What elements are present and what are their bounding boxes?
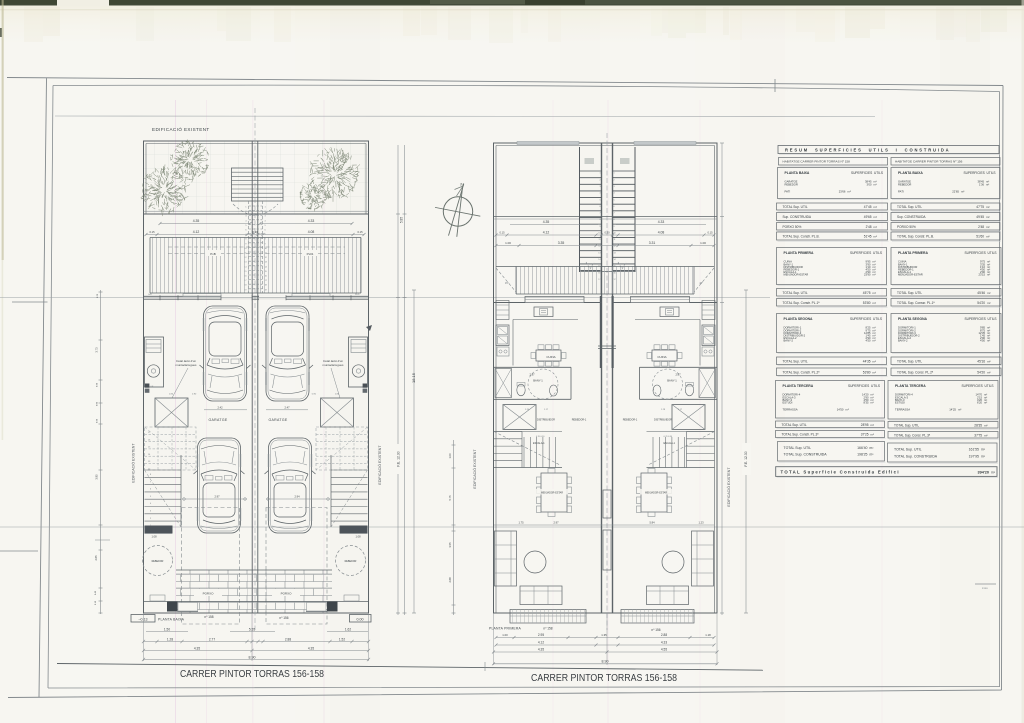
svg-text:REBEDOR: REBEDOR — [152, 560, 164, 563]
svg-text:53'80: 53'80 — [863, 301, 871, 305]
svg-text:F.E. 12.30: F.E. 12.30 — [744, 451, 748, 466]
svg-text:PLANTA TERCERA: PLANTA TERCERA — [783, 384, 814, 388]
svg-text:4.35: 4.35 — [308, 646, 314, 650]
svg-text:N: N — [460, 182, 463, 187]
svg-text:m²: m² — [986, 183, 989, 186]
svg-text:3.35: 3.35 — [558, 241, 565, 245]
svg-text:GPl: GPl — [148, 294, 152, 296]
svg-text:PLANTA SEGONA: PLANTA SEGONA — [784, 317, 814, 321]
svg-text:198'25: 198'25 — [857, 453, 867, 457]
svg-text:1.50: 1.50 — [164, 627, 170, 631]
svg-text:2.87: 2.87 — [675, 373, 681, 377]
svg-text:53'80: 53'80 — [863, 370, 871, 374]
svg-text:m²: m² — [961, 189, 964, 193]
svg-text:22'65: 22'65 — [952, 189, 959, 193]
svg-text:m²: m² — [874, 225, 878, 229]
svg-text:nº 158: nº 158 — [204, 615, 213, 619]
svg-text:1.08: 1.08 — [151, 535, 157, 539]
svg-text:45'46: 45'46 — [977, 291, 985, 295]
svg-text:m²: m² — [874, 183, 877, 186]
svg-text:2.65: 2.65 — [94, 555, 98, 561]
svg-text:23'66: 23'66 — [839, 189, 846, 193]
svg-text:12: 12 — [598, 246, 600, 248]
svg-text:166'40: 166'40 — [857, 446, 867, 450]
svg-text:0.15: 0.15 — [499, 231, 505, 235]
svg-text:m²: m² — [873, 370, 877, 374]
svg-text:51'45: 51'45 — [864, 235, 872, 239]
svg-text:394'20: 394'20 — [978, 471, 989, 475]
svg-text:SUPERFICIES UTILS: SUPERFICIES UTILS — [964, 317, 996, 321]
svg-text:28'95: 28'95 — [861, 423, 869, 427]
svg-text:51'60: 51'60 — [976, 235, 984, 239]
svg-text:PLANTA TERCERA: PLANTA TERCERA — [895, 384, 926, 388]
svg-text:EDIFICACIÓ EXISTENT: EDIFICACIÓ EXISTENT — [152, 126, 210, 132]
svg-text:BANY-2: BANY-2 — [898, 339, 908, 343]
svg-text:14: 14 — [614, 259, 616, 261]
svg-text:4: 4 — [599, 193, 600, 195]
svg-text:1: 1 — [599, 173, 600, 175]
svg-text:REBEDOR: REBEDOR — [785, 182, 798, 186]
svg-text:BANY-2: BANY-2 — [784, 339, 794, 343]
svg-text:2.95: 2.95 — [538, 633, 544, 637]
svg-text:1: 1 — [614, 173, 615, 175]
svg-text:m²: m² — [987, 340, 990, 343]
svg-text:PLANTA PRIMERA: PLANTA PRIMERA — [489, 627, 521, 631]
svg-text:EDIFICACIÓ EXISTENT: EDIFICACIÓ EXISTENT — [726, 467, 731, 507]
svg-text:m²: m² — [986, 235, 990, 239]
svg-text:TOTAL Sup. UTIL: TOTAL Sup. UTIL — [783, 291, 808, 295]
svg-text:PORXO: PORXO — [281, 592, 293, 596]
svg-text:8.90: 8.90 — [602, 659, 609, 663]
svg-text:nº 158: nº 158 — [543, 627, 552, 631]
svg-text:5: 5 — [614, 199, 615, 201]
svg-text:2.47: 2.47 — [284, 405, 290, 409]
svg-text:PLANTA PRIMERA: PLANTA PRIMERA — [898, 251, 928, 255]
svg-text:4.33: 4.33 — [308, 219, 315, 223]
svg-text:SUPERFICIES UTILS: SUPERFICIES UTILS — [961, 384, 993, 388]
svg-text:TERRASSA: TERRASSA — [783, 408, 798, 412]
svg-text:index: index — [982, 587, 989, 590]
svg-text:ESCALA-1: ESCALA-1 — [533, 442, 545, 445]
svg-text:m²: m² — [984, 433, 988, 437]
svg-text:EDIFICACIÓ EXISTENT: EDIFICACIÓ EXISTENT — [472, 449, 477, 489]
svg-text:PATI: PATI — [898, 189, 904, 193]
svg-text:m²: m² — [987, 274, 990, 277]
svg-text:TOTAL Sup. UTIL: TOTAL Sup. UTIL — [897, 359, 922, 363]
svg-text:Sup. CONSTRUIDA: Sup. CONSTRUIDA — [897, 215, 926, 219]
svg-text:m²: m² — [986, 205, 990, 209]
svg-text:4.08: 4.08 — [308, 230, 315, 234]
svg-text:7: 7 — [599, 213, 600, 215]
svg-text:TOTAL Sup. Constr. PL.B.: TOTAL Sup. Constr. PL.B. — [783, 235, 820, 239]
svg-text:MENJADOR-ESTAR: MENJADOR-ESTAR — [898, 273, 923, 277]
svg-text:m²: m² — [873, 359, 877, 363]
svg-text:2.77: 2.77 — [209, 637, 215, 641]
svg-text:13: 13 — [614, 252, 616, 254]
svg-text:MENJADOR-ESTAR: MENJADOR-ESTAR — [645, 491, 667, 494]
svg-text:4.35: 4.35 — [543, 220, 550, 224]
svg-text:37'75: 37'75 — [974, 433, 982, 437]
svg-text:DISTRIBUIDOR: DISTRIBUIDOR — [537, 419, 555, 422]
svg-text:–0.13: –0.13 — [139, 617, 148, 621]
svg-text:TOTAL Sup. UTIL: TOTAL Sup. UTIL — [784, 446, 812, 450]
svg-text:muntacàrregues: muntacàrregues — [323, 363, 344, 367]
svg-text:PORXO: PORXO — [203, 592, 215, 596]
svg-text:2.97: 2.97 — [553, 521, 559, 525]
svg-text:ESCALA-1: ESCALA-1 — [663, 442, 675, 445]
svg-text:8'35: 8'35 — [864, 401, 870, 405]
svg-text:3'00: 3'00 — [867, 182, 873, 186]
svg-text:REBEDOR-1: REBEDOR-1 — [572, 419, 587, 422]
svg-text:m²: m² — [873, 274, 876, 277]
svg-text:PLANTA SEGONA: PLANTA SEGONA — [898, 317, 928, 321]
svg-text:1.62: 1.62 — [345, 627, 351, 631]
svg-text:14'25: 14'25 — [949, 408, 956, 412]
svg-text:28'35: 28'35 — [974, 423, 982, 427]
svg-text:ESTUDI: ESTUDI — [895, 401, 905, 405]
svg-text:37'25: 37'25 — [861, 433, 869, 437]
svg-text:REBEDOR: REBEDOR — [898, 182, 911, 186]
svg-text:5.85: 5.85 — [400, 217, 404, 223]
svg-text:0.15: 0.15 — [357, 230, 363, 234]
svg-text:0.70 0.30: 0.70 0.30 — [536, 436, 545, 438]
svg-text:0.00: 0.00 — [357, 617, 364, 621]
svg-text:CARRER PINTOR TORRAS 156-158: CARRER PINTOR TORRAS 156-158 — [531, 673, 677, 684]
svg-text:4.33: 4.33 — [658, 220, 665, 224]
svg-text:3.31: 3.31 — [649, 241, 656, 245]
svg-text:1.18: 1.18 — [705, 633, 711, 637]
svg-text:TOTAL Sup. Constr. PL.2ª: TOTAL Sup. Constr. PL.2ª — [783, 370, 821, 374]
svg-text:1.52: 1.52 — [339, 637, 345, 641]
svg-text:8: 8 — [599, 219, 600, 221]
svg-text:m²: m² — [958, 408, 961, 412]
svg-text:2.68: 2.68 — [448, 577, 452, 583]
svg-text:ESTUDI: ESTUDI — [783, 401, 793, 405]
svg-text:14'50: 14'50 — [837, 408, 844, 412]
svg-text:MENJADOR-ESTAR: MENJADOR-ESTAR — [541, 491, 563, 494]
svg-text:CARRER PINTOR TORRAS 156-158: CARRER PINTOR TORRAS 156-158 — [180, 669, 324, 680]
svg-text:2'48: 2'48 — [978, 225, 984, 229]
svg-text:23'90: 23'90 — [864, 273, 871, 277]
svg-text:BANY-1: BANY-1 — [533, 379, 543, 383]
svg-text:m²: m² — [984, 402, 987, 405]
svg-text:4.33: 4.33 — [661, 641, 667, 645]
svg-text:TOTAL Superficie Construida Ed: TOTAL Superficie Construida Edifici — [781, 470, 900, 475]
svg-text:5.84: 5.84 — [649, 521, 655, 525]
svg-text:54'20: 54'20 — [977, 301, 985, 305]
svg-text:TOTAL Sup. Conssr. PL.1ª: TOTAL Sup. Conssr. PL.1ª — [897, 301, 935, 305]
svg-text:nº 156: nº 156 — [651, 628, 660, 632]
svg-text:4'50: 4'50 — [980, 339, 986, 343]
svg-text:TOTAL Sup. Constr. PL.1ª: TOTAL Sup. Constr. PL.1ª — [783, 301, 821, 305]
svg-text:2.94: 2.94 — [294, 495, 300, 499]
svg-text:SUPERFICIES UTILS: SUPERFICIES UTILS — [964, 251, 996, 255]
svg-text:4: 4 — [614, 193, 615, 195]
svg-text:2.88: 2.88 — [285, 637, 291, 641]
svg-text:23'15: 23'15 — [979, 273, 986, 277]
svg-text:PORXO 50%: PORXO 50% — [783, 225, 802, 229]
svg-text:1.00: 1.00 — [700, 241, 706, 245]
svg-text:1.75: 1.75 — [518, 521, 524, 525]
svg-text:49'65: 49'65 — [864, 215, 872, 219]
svg-text:1.08: 1.08 — [355, 535, 361, 539]
svg-text:45°: 45° — [505, 282, 509, 285]
svg-text:TOTAL Sup. CONSTRUIDA: TOTAL Sup. CONSTRUIDA — [784, 453, 828, 457]
svg-text:0.70 0.30: 0.70 0.30 — [664, 436, 673, 438]
svg-text:DISTRIBUIDOR: DISTRIBUIDOR — [654, 419, 672, 422]
svg-text:HABITATGE CARRER PINTOR TORRAS: HABITATGE CARRER PINTOR TORRAS Nº 156 — [895, 160, 963, 164]
svg-text:1'36: 1'36 — [979, 182, 985, 186]
svg-text:TOTAL Sup. Constr. PL.3ª: TOTAL Sup. Constr. PL.3ª — [782, 433, 820, 437]
svg-text:nº 156: nº 156 — [279, 616, 288, 620]
svg-text:m²: m² — [871, 433, 875, 437]
svg-text:m²: m² — [874, 215, 878, 219]
svg-text:CUINA: CUINA — [546, 355, 555, 359]
svg-text:RESUM SUPERFICIES UTILS I: RESUM SUPERFICIES UTILS I CONSTRUIDA — [785, 147, 950, 152]
svg-text:2.42: 2.42 — [217, 405, 223, 409]
svg-text:45°: 45° — [699, 282, 703, 285]
svg-text:muntacàrregues: muntacàrregues — [176, 363, 197, 367]
svg-text:PLG: PLG — [355, 294, 360, 296]
svg-text:PLANTA BAIXA: PLANTA BAIXA — [898, 171, 923, 175]
svg-text:13: 13 — [598, 252, 600, 254]
svg-text:EDIFICACIÓ EXISTENT: EDIFICACIÓ EXISTENT — [131, 443, 136, 483]
svg-text:PATI: PATI — [785, 189, 791, 193]
svg-text:4.12: 4.12 — [543, 231, 550, 235]
svg-text:0.15: 0.15 — [707, 231, 713, 235]
svg-text:REBEDOR: REBEDOR — [345, 560, 357, 563]
svg-text:3.55: 3.55 — [448, 542, 452, 548]
svg-text:5.75: 5.75 — [448, 495, 452, 501]
svg-text:45'75: 45'75 — [863, 291, 871, 295]
svg-text:1.28: 1.28 — [167, 637, 173, 641]
svg-text:CUINA: CUINA — [657, 355, 666, 359]
svg-text:2.87: 2.87 — [529, 373, 535, 377]
svg-text:m²: m² — [987, 359, 991, 363]
svg-text:m²: m² — [986, 225, 990, 229]
svg-text:m²: m² — [986, 215, 990, 219]
svg-text:SUPERFICIES UTILS: SUPERFICIES UTILS — [963, 171, 995, 175]
svg-text:F.E. 12.30: F.E. 12.30 — [397, 451, 401, 466]
svg-text:7: 7 — [614, 213, 615, 215]
svg-text:47'75: 47'75 — [976, 205, 984, 209]
svg-text:14: 14 — [598, 259, 600, 261]
svg-text:TOTAL Sup. Consr. PL.3ª: TOTAL Sup. Consr. PL.3ª — [894, 433, 931, 437]
svg-text:3: 3 — [614, 186, 615, 188]
svg-text:SUPERFICIES UTILS: SUPERFICIES UTILS — [848, 384, 880, 388]
svg-text:TOTAL Sup. UTIL: TOTAL Sup. UTIL — [897, 291, 922, 295]
svg-text:m²: m² — [984, 423, 988, 427]
svg-text:TERRASSA: TERRASSA — [895, 408, 910, 412]
svg-text:TOTAL Sup. UTIL: TOTAL Sup. UTIL — [894, 423, 919, 427]
svg-text:1.00: 1.00 — [505, 241, 511, 245]
svg-text:Px01: Px01 — [307, 252, 314, 256]
svg-text:REBEDOR-1: REBEDOR-1 — [623, 419, 638, 422]
svg-text:54'20: 54'20 — [977, 370, 985, 374]
svg-text:PORXO 50%: PORXO 50% — [897, 225, 916, 229]
svg-text:SUPERFICIES UTILS: SUPERFICIES UTILS — [850, 317, 882, 321]
svg-text:HABITATGE CARRER PINTOR TORRAS: HABITATGE CARRER PINTOR TORRAS Nº 158 — [783, 160, 851, 164]
svg-text:m²: m² — [873, 301, 877, 305]
svg-text:TOTAL Sup. UTIL: TOTAL Sup. UTIL — [783, 205, 808, 209]
svg-text:4.12: 4.12 — [193, 230, 200, 234]
svg-text:4.35: 4.35 — [194, 646, 200, 650]
svg-text:11: 11 — [599, 239, 601, 241]
svg-text:9: 9 — [614, 226, 615, 228]
svg-text:EDIFICACIÓ EXISTENT: EDIFICACIÓ EXISTENT — [377, 445, 382, 485]
svg-text:PLANTA BAIXA: PLANTA BAIXA — [785, 171, 810, 175]
svg-text:m²: m² — [987, 370, 991, 374]
svg-text:GARATGE: GARATGE — [209, 418, 228, 422]
svg-text:4.35: 4.35 — [538, 648, 544, 652]
svg-text:PLANTA BAIXA: PLANTA BAIXA — [158, 618, 185, 622]
svg-text:TOTAL Sup. UTIL: TOTAL Sup. UTIL — [783, 359, 808, 363]
svg-text:4.35: 4.35 — [193, 219, 200, 223]
svg-text:1.00: 1.00 — [448, 453, 452, 459]
svg-text:m²: m² — [987, 301, 991, 305]
svg-text:2'48: 2'48 — [866, 225, 872, 229]
svg-text:m²: m² — [874, 235, 878, 239]
svg-text:MENJADOR-ESTAR: MENJADOR-ESTAR — [784, 273, 809, 277]
svg-text:161'55: 161'55 — [969, 447, 979, 451]
svg-text:PLANTA PRIMERA: PLANTA PRIMERA — [784, 251, 814, 255]
svg-text:4'50: 4'50 — [866, 339, 872, 343]
svg-text:6: 6 — [614, 206, 615, 208]
svg-text:m²: m² — [871, 423, 875, 427]
svg-text:6: 6 — [599, 206, 600, 208]
svg-text:1.35: 1.35 — [601, 633, 607, 637]
svg-text:4.55: 4.55 — [661, 648, 667, 652]
svg-text:GARATGE: GARATGE — [269, 418, 288, 422]
svg-text:TOTAL Sup. Constr. PL.B.: TOTAL Sup. Constr. PL.B. — [897, 235, 934, 239]
svg-text:1.23: 1.23 — [698, 521, 704, 525]
svg-text:45'16: 45'16 — [977, 359, 985, 363]
svg-text:47'45: 47'45 — [864, 205, 872, 209]
svg-text:6'20: 6'20 — [977, 401, 983, 405]
svg-text:PxB: PxB — [210, 252, 216, 256]
svg-text:8: 8 — [614, 219, 615, 221]
svg-text:5: 5 — [599, 199, 600, 201]
svg-text:m²: m² — [873, 340, 876, 343]
svg-text:3.73: 3.73 — [95, 347, 99, 353]
svg-text:SUPERFICIES UTILS: SUPERFICIES UTILS — [851, 171, 883, 175]
svg-text:SUPERFICIES UTILS: SUPERFICIES UTILS — [850, 251, 882, 255]
svg-text:11: 11 — [614, 239, 616, 241]
svg-text:197'95: 197'95 — [969, 454, 979, 458]
svg-text:10: 10 — [598, 232, 600, 234]
svg-text:TOTAL Sup. Consr. PL.2ª: TOTAL Sup. Consr. PL.2ª — [897, 370, 934, 374]
svg-text:TOTAL Sup. UTIL: TOTAL Sup. UTIL — [897, 205, 922, 209]
svg-text:TOTAL Sup. UTIL: TOTAL Sup. UTIL — [782, 423, 807, 427]
svg-text:m²: m² — [871, 402, 874, 405]
svg-text:Sup. CONSTRUIDA: Sup. CONSTRUIDA — [783, 215, 812, 219]
svg-text:0.30: 0.30 — [604, 231, 610, 235]
svg-text:m²: m² — [874, 205, 878, 209]
svg-text:4.12: 4.12 — [538, 641, 544, 645]
svg-text:3.85: 3.85 — [95, 474, 99, 480]
svg-text:12: 12 — [614, 246, 616, 248]
svg-text:3: 3 — [599, 186, 600, 188]
svg-text:TOTAL Sup. CONSTRUIDA: TOTAL Sup. CONSTRUIDA — [894, 454, 938, 458]
svg-text:m²: m² — [873, 291, 877, 295]
svg-text:9: 9 — [599, 226, 600, 228]
svg-text:m²: m² — [848, 189, 851, 193]
svg-text:44'35: 44'35 — [863, 359, 871, 363]
svg-text:4.08: 4.08 — [658, 231, 665, 235]
svg-text:2: 2 — [599, 179, 600, 181]
svg-text:2: 2 — [614, 179, 615, 181]
svg-text:1.00: 1.00 — [502, 633, 508, 637]
svg-text:m²: m² — [846, 408, 849, 412]
svg-text:TOTAL Sup. UTIL: TOTAL Sup. UTIL — [894, 447, 922, 451]
svg-text:49'45: 49'45 — [976, 215, 984, 219]
svg-text:BANY-1: BANY-1 — [667, 379, 677, 383]
svg-text:m²: m² — [987, 291, 991, 295]
svg-text:2.97: 2.97 — [214, 495, 220, 499]
svg-text:2.88: 2.88 — [661, 633, 667, 637]
svg-text:0.15: 0.15 — [149, 230, 155, 234]
svg-text:18.15: 18.15 — [411, 372, 416, 383]
